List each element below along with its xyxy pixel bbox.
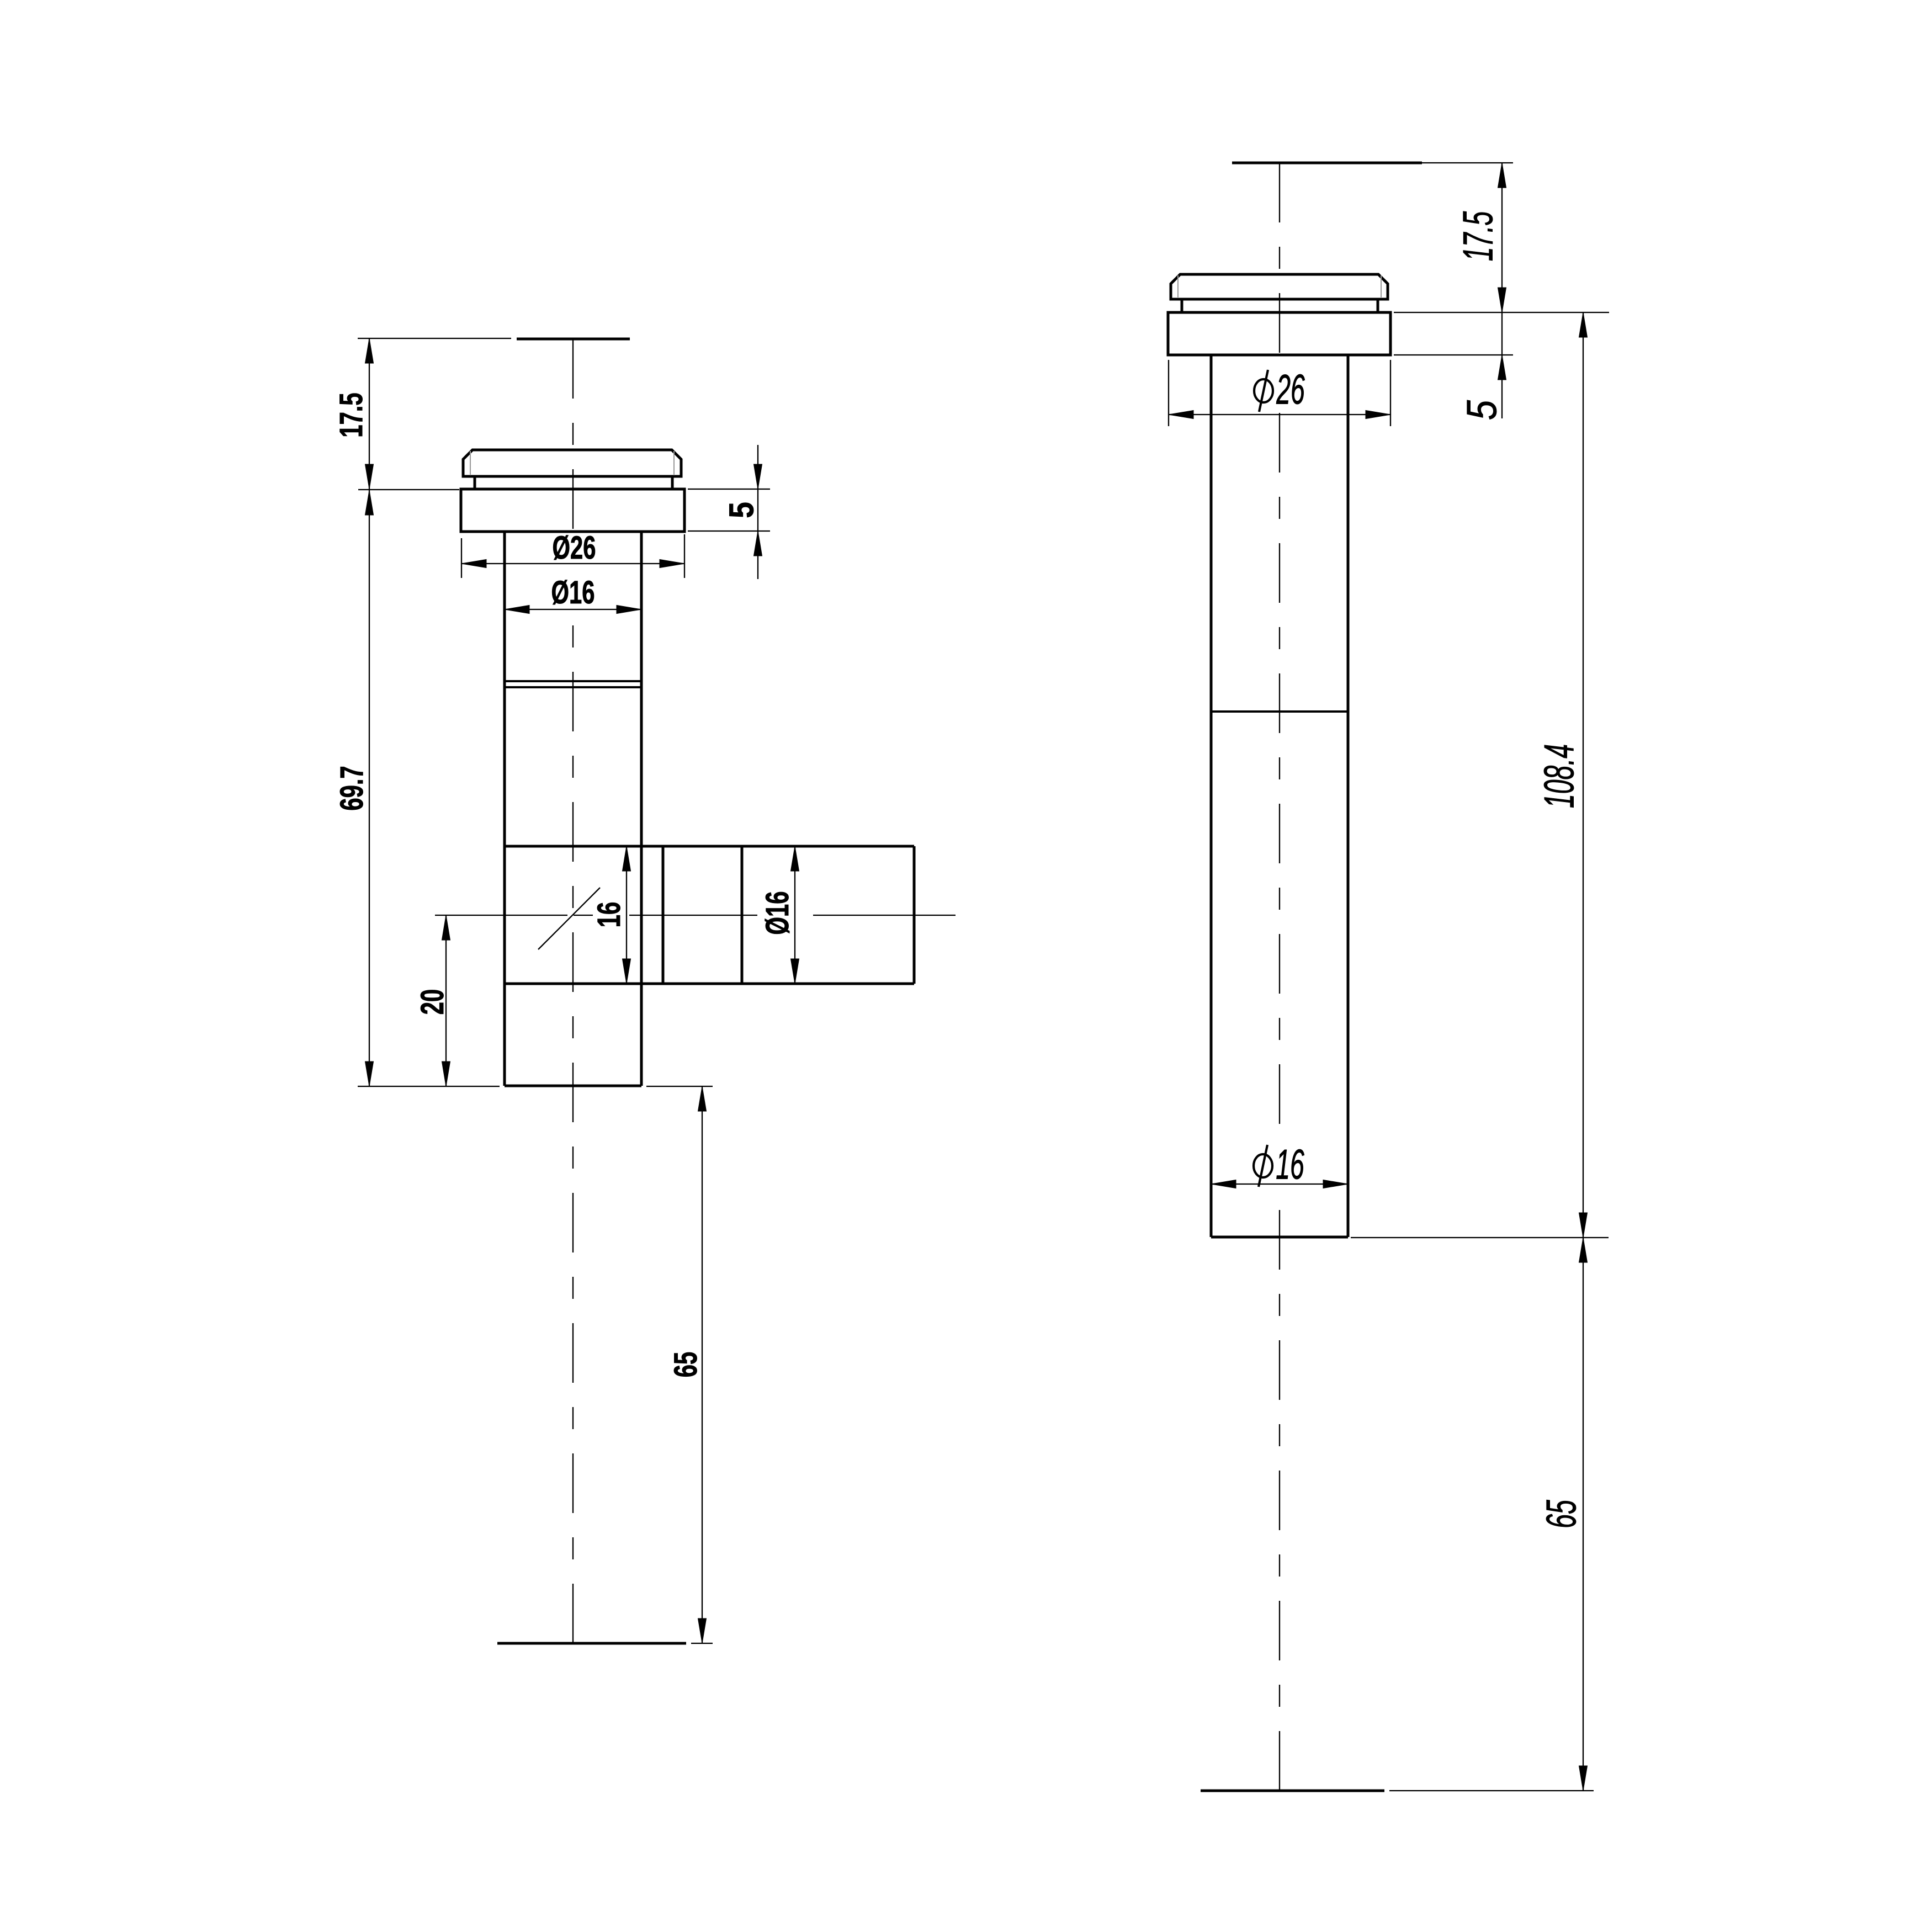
svg-text:Ø26: Ø26 bbox=[553, 529, 596, 565]
svg-text:20: 20 bbox=[414, 989, 450, 1015]
svg-text:26: 26 bbox=[1276, 367, 1304, 413]
svg-text:Ø16: Ø16 bbox=[759, 891, 795, 935]
svg-text:5: 5 bbox=[1458, 400, 1505, 420]
svg-text:Ø16: Ø16 bbox=[551, 574, 595, 610]
svg-text:17.5: 17.5 bbox=[333, 392, 369, 437]
svg-text:16: 16 bbox=[591, 902, 627, 927]
svg-text:17.5: 17.5 bbox=[1455, 211, 1502, 261]
svg-text:16: 16 bbox=[1276, 1142, 1304, 1188]
svg-text:65: 65 bbox=[1538, 1499, 1585, 1528]
svg-text:69.7: 69.7 bbox=[333, 766, 369, 810]
svg-text:5: 5 bbox=[723, 502, 761, 518]
svg-text:65: 65 bbox=[667, 1352, 703, 1377]
svg-text:108.4: 108.4 bbox=[1536, 744, 1583, 808]
